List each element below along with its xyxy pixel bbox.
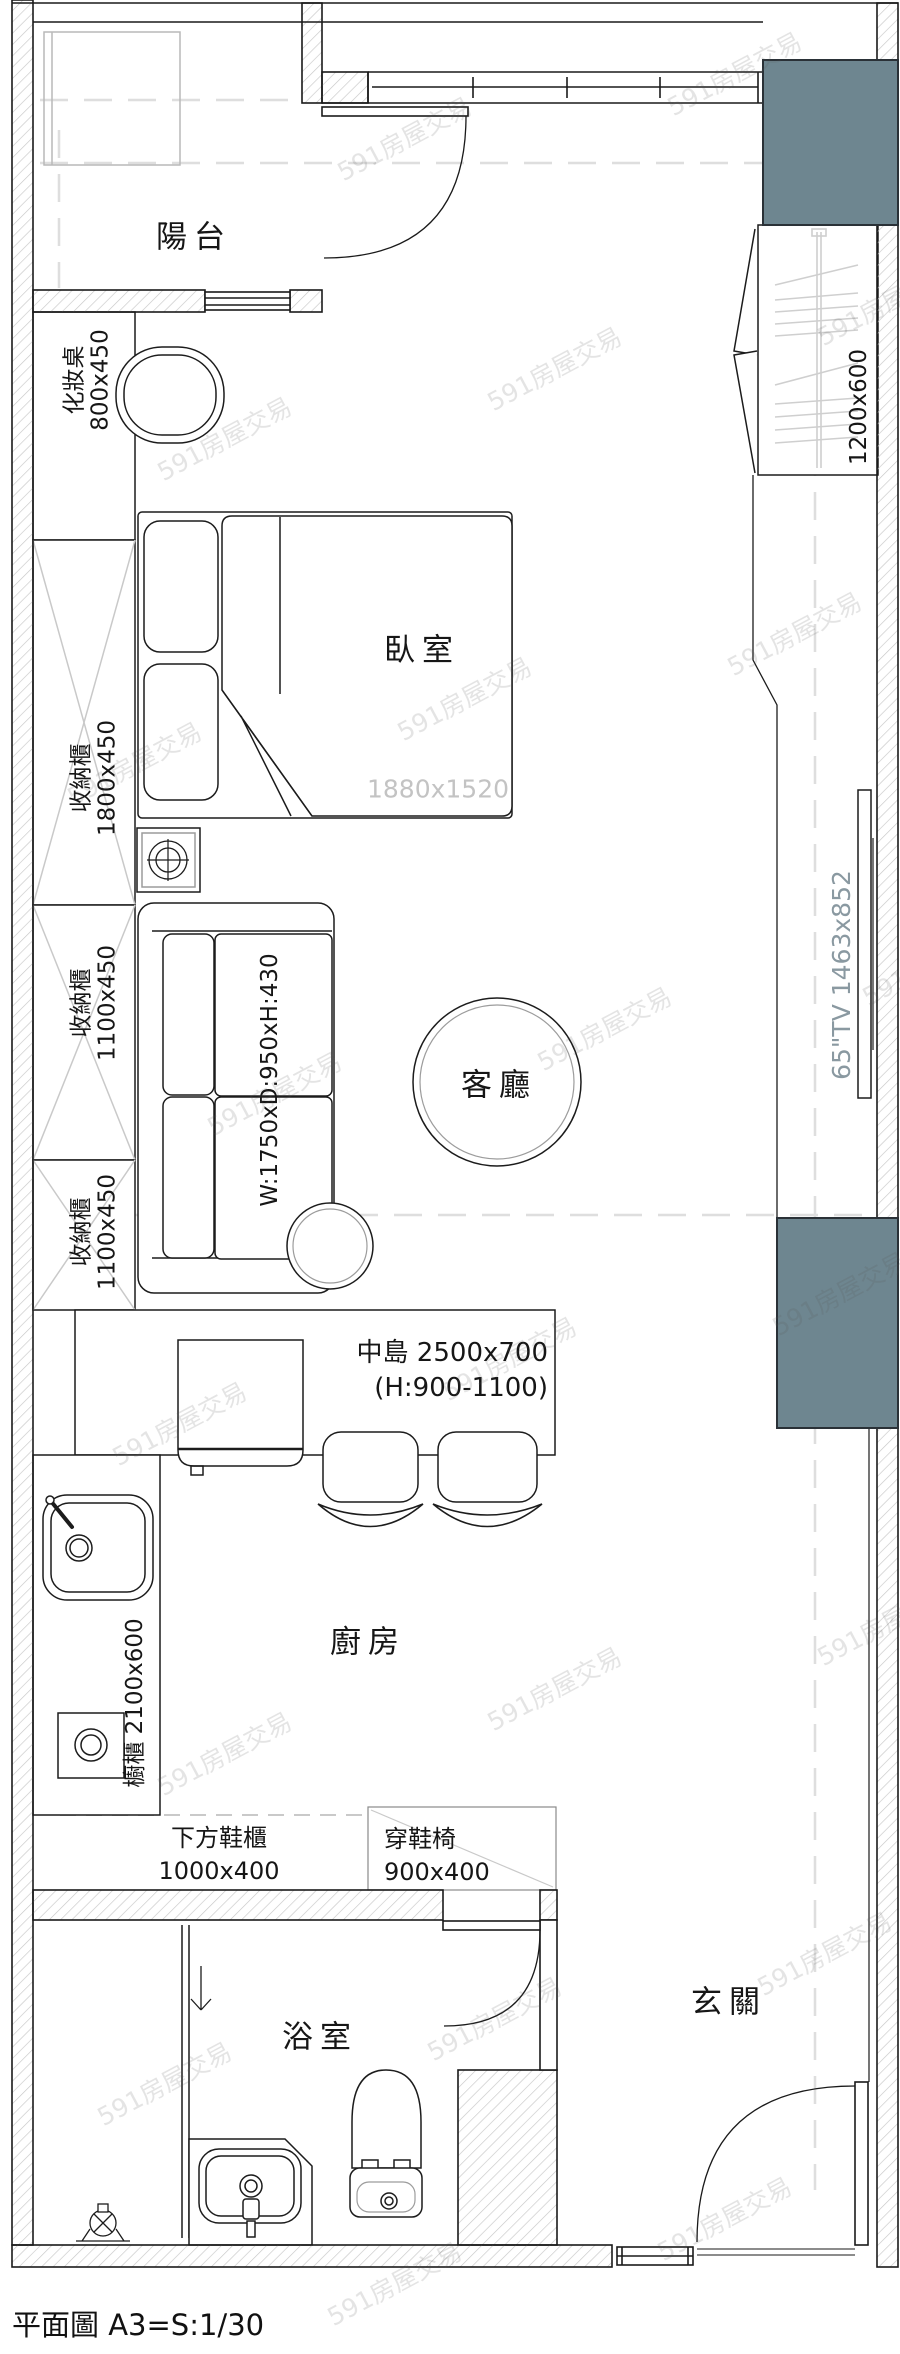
wall-bottom [12,2245,612,2267]
vanity-chair [116,347,224,443]
wall-bathroom-top-right [540,1890,557,1920]
room-label-bedroom: 臥室 [384,625,460,670]
island-label-line2: (H:900-1100) [330,1371,548,1406]
shower-partition [182,1925,189,2238]
vanity-dim: 800x450 [88,329,114,430]
kitchen-cabinet-label: 櫥櫃 2100x600 [123,1618,149,1787]
island-appliance [178,1340,303,1466]
shoe-bench-name: 穿鞋椅 [384,1823,490,1856]
vanity-label: 化妝桌 800x450 [62,329,114,430]
wardrobe-bifold-door-bottom [734,351,757,473]
cabinet-a-dim: 1800x450 [95,720,121,836]
structural-column-mid [777,1218,898,1428]
cabinet-c-dim: 1100x450 [95,1174,121,1290]
room-label-kitchen: 廚房 [330,1617,406,1662]
room-label-entry: 玄關 [691,1977,767,2022]
bar-stool-1 [318,1432,423,1527]
cabinet-a-name: 收納櫃 [69,744,95,813]
bathroom-door [443,1921,540,2026]
structural-column-top [763,60,898,225]
wardrobe-dimension: 1200x600 [847,349,873,465]
tv [858,790,873,1098]
cabinet-c-label: 收納櫃 1100x450 [69,1174,121,1290]
corridor-edge-line [753,475,777,1218]
toilet [350,2070,422,2217]
floor-plan: 陽台 臥室 客廳 廚房 浴室 玄關 1880x1520 中島 2500x700 … [0,0,900,2354]
wall-right-top [877,3,898,60]
shoe-cabinet-label: 下方鞋櫃 1000x400 [158,1822,279,1888]
sofa-side-table [287,1203,373,1289]
shoe-bench-dim: 900x400 [384,1856,490,1889]
wardrobe-bifold-door-top [734,229,757,355]
cabinet-b-label: 收納櫃 1100x450 [69,945,121,1061]
shoe-bench-label: 穿鞋椅 900x400 [384,1823,490,1889]
bed-dimension: 1880x1520 [367,775,509,804]
main-door [697,2082,868,2255]
wall-window-pier [322,72,368,103]
wall-balcony-bottom-right [290,290,322,312]
shower-slope-arrow [191,1966,211,2010]
tv-dimension: 65"TV 1463x852 [828,870,856,1080]
wall-right-lower [877,1428,898,2267]
balcony-cabinet [44,32,180,165]
bathroom-partition [540,1920,557,2070]
bar-stool-2 [433,1432,542,1527]
nightstand [137,828,200,892]
room-label-bathroom: 浴室 [282,2012,358,2057]
room-label-living: 客廳 [461,1060,537,1105]
floor-drain [76,2204,130,2241]
cabinet-a-label: 收納櫃 1800x450 [69,720,121,836]
sofa-dimension: W:1750xD:950xH:430 [258,953,284,1206]
shoe-cabinet-name: 下方鞋櫃 [158,1822,279,1855]
top-window [322,72,763,103]
cabinet-b-dim: 1100x450 [95,945,121,1061]
wall-balcony-bottom [33,290,205,312]
wall-bathroom-top-left [33,1890,443,1920]
entry-window [617,2247,693,2265]
balcony-window [205,292,290,310]
bathroom-vanity [189,2139,312,2245]
room-label-balcony: 陽台 [156,212,232,257]
cabinet-b-name: 收納櫃 [69,969,95,1038]
island-label-line1: 中島 2500x700 [330,1336,548,1371]
wall-left [12,0,33,2245]
balcony-door [322,107,468,258]
island-label: 中島 2500x700 (H:900-1100) [330,1336,548,1406]
cabinet-c-name: 收納櫃 [69,1198,95,1267]
plan-title: 平面圖 A3=S:1/30 [12,2302,264,2344]
kitchen-hob [58,1713,124,1778]
wall-entry-column [458,2070,557,2245]
shoe-cabinet-dim: 1000x400 [158,1855,279,1888]
kitchen-sink [43,1495,153,1600]
wall-right-upper [877,225,898,1218]
vanity-name: 化妝桌 [62,346,88,415]
wall-balcony-column [302,3,322,103]
